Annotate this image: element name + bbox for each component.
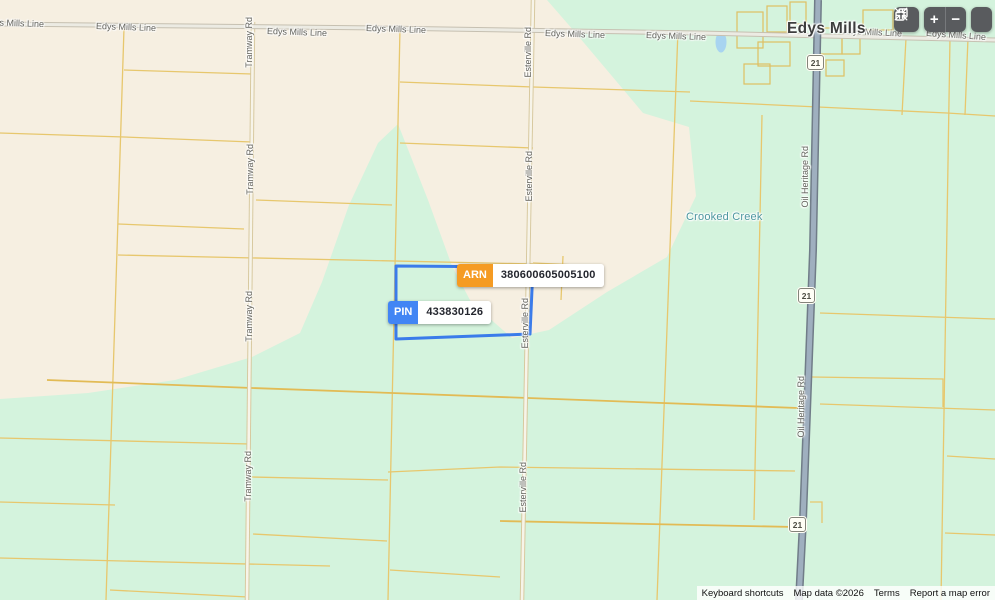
highway-shield: 21	[807, 55, 824, 70]
zoom-in-button[interactable]: +	[924, 7, 945, 32]
terms-link[interactable]: Terms	[869, 586, 905, 600]
arn-label[interactable]: ARN 380600605005100	[457, 264, 604, 287]
report-map-error-link[interactable]: Report a map error	[905, 586, 995, 600]
map-data-text: Map data ©2026	[788, 586, 868, 600]
arn-badge: ARN	[457, 264, 493, 287]
map-canvas[interactable]	[0, 0, 995, 600]
zoom-out-button[interactable]: −	[946, 7, 967, 32]
map-viewport[interactable]: Edys Mills LineEdys Mills LineEdys Mills…	[0, 0, 995, 600]
pin-label[interactable]: PIN 433830126	[388, 301, 491, 324]
map-controls: + −	[894, 7, 992, 32]
pin-badge: PIN	[388, 301, 418, 324]
arn-value: 380600605005100	[493, 264, 604, 287]
pin-value: 433830126	[418, 301, 491, 324]
keyboard-shortcuts-link[interactable]: Keyboard shortcuts	[697, 586, 789, 600]
highway-shield: 21	[798, 288, 815, 303]
attribution-bar: Keyboard shortcuts Map data ©2026 Terms …	[697, 586, 995, 600]
fullscreen-exit-button[interactable]	[971, 7, 992, 32]
highway-shield: 21	[789, 517, 806, 532]
